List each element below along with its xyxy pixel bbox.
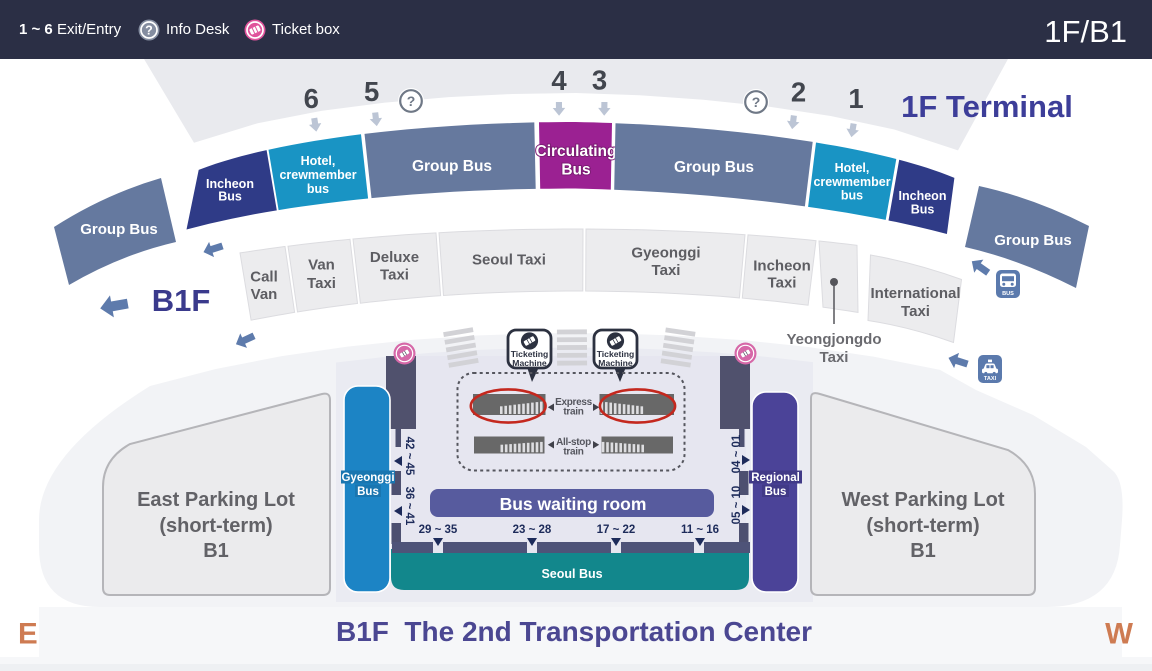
svg-text:Bus: Bus	[765, 486, 787, 498]
svg-text:6: 6	[304, 83, 319, 114]
svg-text:Taxi: Taxi	[901, 303, 930, 320]
svg-text:17 ~ 22: 17 ~ 22	[597, 524, 636, 536]
svg-text:Van: Van	[251, 286, 278, 303]
svg-text:42 ~ 45: 42 ~ 45	[403, 437, 415, 476]
svg-text:3: 3	[592, 65, 607, 96]
svg-text:?: ?	[145, 24, 153, 38]
svg-text:BUS: BUS	[1002, 291, 1014, 297]
svg-text:2: 2	[791, 77, 806, 108]
svg-text:Group Bus: Group Bus	[994, 232, 1072, 249]
svg-text:1F Terminal: 1F Terminal	[901, 89, 1073, 124]
svg-text:Gyeonggi: Gyeonggi	[631, 245, 700, 262]
svg-text:Taxi: Taxi	[768, 275, 797, 292]
svg-text:B1: B1	[203, 540, 229, 562]
svg-text:Bus: Bus	[218, 190, 242, 204]
svg-text:Taxi: Taxi	[307, 275, 336, 292]
svg-text:Deluxe: Deluxe	[370, 249, 419, 266]
svg-text:04 ~ 01: 04 ~ 01	[731, 434, 743, 473]
svg-text:E: E	[18, 618, 38, 651]
svg-text:B1: B1	[910, 540, 936, 562]
svg-text:Seoul Bus: Seoul Bus	[541, 567, 602, 581]
svg-text:Bus: Bus	[911, 203, 935, 217]
svg-text:Taxi: Taxi	[380, 267, 409, 284]
svg-text:Taxi: Taxi	[820, 349, 849, 366]
svg-text:Group Bus: Group Bus	[412, 158, 492, 175]
svg-text:train: train	[563, 447, 583, 458]
svg-text:Incheon: Incheon	[899, 189, 947, 203]
svg-text:29 ~ 35: 29 ~ 35	[419, 524, 458, 536]
svg-text:West Parking Lot: West Parking Lot	[842, 489, 1005, 511]
svg-text:Incheon: Incheon	[753, 258, 811, 275]
svg-text:Yeongjongdo: Yeongjongdo	[787, 331, 882, 348]
svg-text:?: ?	[407, 93, 416, 109]
svg-text:5: 5	[364, 76, 379, 107]
svg-text:Hotel,: Hotel,	[835, 161, 870, 175]
svg-text:TAXI: TAXI	[984, 376, 997, 382]
svg-text:crewmember: crewmember	[279, 168, 356, 182]
svg-text:4: 4	[551, 65, 567, 96]
svg-text:crewmember: crewmember	[813, 175, 890, 189]
svg-text:Bus: Bus	[357, 486, 379, 498]
svg-text:Gyeonggi: Gyeonggi	[341, 472, 394, 484]
svg-text:1: 1	[848, 83, 863, 114]
svg-text:Group Bus: Group Bus	[674, 159, 754, 176]
svg-text:Bus: Bus	[561, 162, 590, 179]
svg-text:W: W	[1105, 618, 1133, 651]
svg-text:(short-term): (short-term)	[159, 515, 272, 537]
svg-text:05 ~ 10: 05 ~ 10	[731, 486, 743, 525]
svg-text:Regional: Regional	[751, 472, 800, 484]
svg-text:Taxi: Taxi	[652, 262, 681, 279]
svg-text:Bus waiting room: Bus waiting room	[500, 494, 647, 514]
svg-text:Circulating: Circulating	[536, 143, 617, 160]
svg-text:bus: bus	[841, 189, 863, 203]
svg-text:bus: bus	[307, 182, 329, 196]
svg-text:Machine: Machine	[512, 358, 547, 368]
svg-text:11 ~ 16: 11 ~ 16	[681, 524, 719, 536]
svg-text:Seoul Taxi: Seoul Taxi	[472, 252, 546, 269]
svg-text:?: ?	[752, 94, 761, 110]
svg-text:Van: Van	[308, 257, 335, 274]
svg-text:East Parking Lot: East Parking Lot	[137, 489, 295, 511]
svg-text:International: International	[870, 285, 960, 302]
svg-text:23 ~ 28: 23 ~ 28	[513, 524, 552, 536]
svg-text:B1F The 2nd Transportation Ce: B1F The 2nd Transportation Center	[336, 616, 812, 647]
svg-text:(short-term): (short-term)	[866, 515, 979, 537]
svg-text:36 ~ 41: 36 ~ 41	[403, 487, 415, 526]
svg-text:Group Bus: Group Bus	[80, 221, 158, 238]
svg-text:train: train	[563, 407, 583, 418]
svg-text:Hotel,: Hotel,	[301, 154, 336, 168]
svg-text:Machine: Machine	[598, 358, 633, 368]
svg-text:Call: Call	[250, 269, 278, 286]
svg-text:B1F: B1F	[152, 283, 211, 318]
